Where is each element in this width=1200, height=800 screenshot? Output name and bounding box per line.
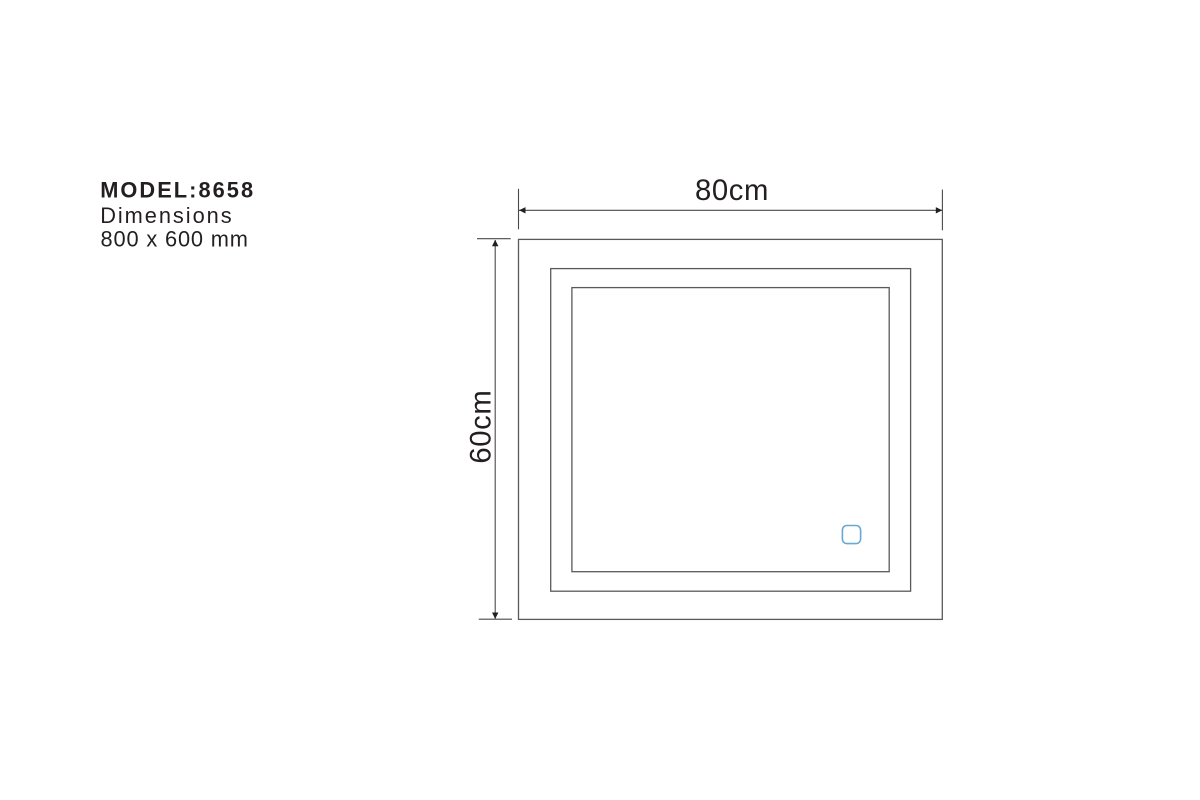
svg-text:800 x 600 mm: 800 x 600 mm — [101, 227, 249, 252]
svg-text:MODEL:8658: MODEL:8658 — [100, 178, 255, 203]
svg-text:Dimensions: Dimensions — [100, 203, 233, 228]
svg-text:60cm: 60cm — [465, 390, 498, 464]
svg-text:80cm: 80cm — [695, 174, 769, 207]
